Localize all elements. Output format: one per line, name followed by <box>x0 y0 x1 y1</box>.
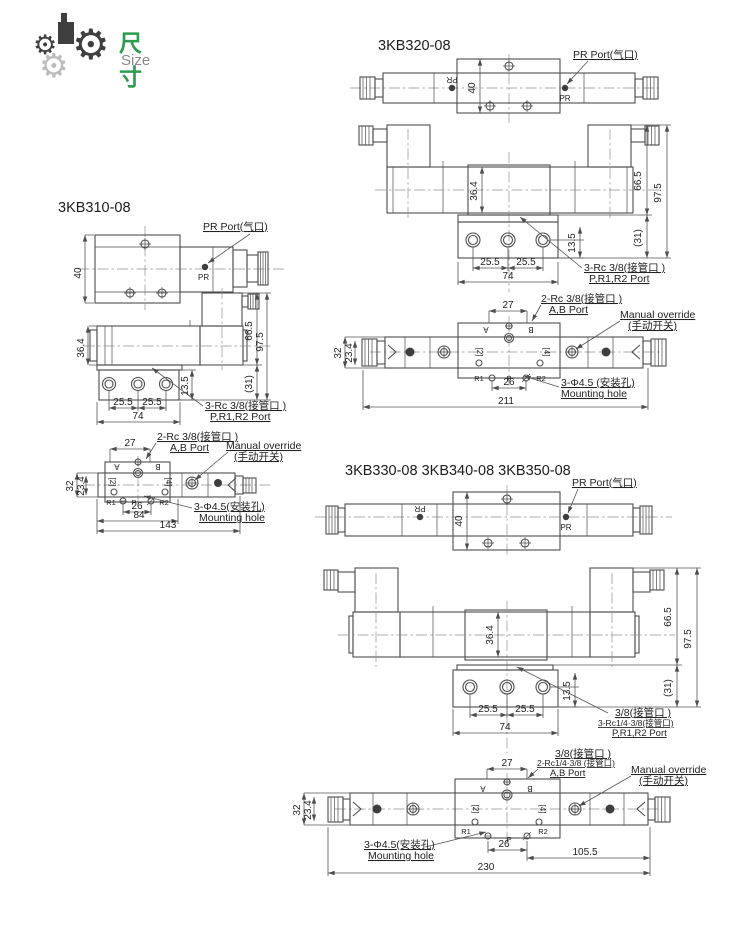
panel-3kb320-drawing: 3KB320-08 PR PR PR Port(气口) <box>330 30 750 430</box>
pr-label: PR <box>560 523 571 532</box>
connector-ribs <box>331 797 338 822</box>
pr-port-dot <box>563 514 569 520</box>
pr-port-dot <box>202 264 208 270</box>
dim-13-5: 13.5 <box>550 673 579 707</box>
svg-text:25.5: 25.5 <box>516 257 536 268</box>
connector-ribs <box>648 126 655 145</box>
port-callout-2: P,R1,R2 Port <box>210 411 271 423</box>
dim-27: 27 <box>489 300 527 323</box>
port-callout-2: P,R1,R2 Port <box>612 728 667 739</box>
screw-ports <box>484 60 533 112</box>
svg-text:97.5: 97.5 <box>683 629 694 649</box>
svg-text:36.4: 36.4 <box>469 181 480 201</box>
svg-text:27: 27 <box>124 438 136 449</box>
svg-text:97.5: 97.5 <box>653 183 664 203</box>
svg-text:230: 230 <box>478 862 495 873</box>
svg-text:66.5: 66.5 <box>633 171 644 191</box>
manual-override-label-cn: (手动开关) <box>639 774 688 787</box>
ab-callout-2: A,B Port <box>170 442 209 454</box>
page: ⚙ ⚙ ⚙ 尺寸 Size 3KB310-08 <box>0 0 750 935</box>
svg-text:66.5: 66.5 <box>663 607 674 627</box>
gear-icon: ⚙ <box>39 49 69 82</box>
port-2-label: [2] <box>471 805 480 814</box>
port-4-label: [4] <box>542 348 551 357</box>
connector-ribs <box>246 478 252 493</box>
connector-ribs <box>327 570 334 590</box>
dim-74: 74 <box>453 709 558 736</box>
size-title-en: Size <box>121 52 150 69</box>
pr-label: PR <box>446 75 457 84</box>
svg-text:26: 26 <box>503 377 515 388</box>
port-a-label: A <box>114 462 120 471</box>
pr-label: PR <box>414 504 425 513</box>
port-callout-2: P,R1,R2 Port <box>589 273 650 285</box>
pr-port-callout: PR Port(气口) <box>203 220 268 233</box>
svg-text:74: 74 <box>499 722 511 733</box>
svg-text:32: 32 <box>292 804 303 816</box>
svg-text:23.4: 23.4 <box>344 343 355 363</box>
dim-36-4: 36.4 <box>485 612 498 657</box>
manual-override-button <box>438 346 450 358</box>
svg-text:32: 32 <box>65 480 76 492</box>
connector-ribs <box>261 252 266 285</box>
svg-text:84: 84 <box>133 510 145 521</box>
pr-label: PR <box>198 273 209 282</box>
connector-ribs <box>658 797 665 822</box>
svg-text:13.5: 13.5 <box>567 233 578 253</box>
connector-ribs <box>643 506 649 534</box>
pr-port-dot <box>562 85 568 91</box>
330-top-view: PR PR PR Port(气口) 40 <box>315 476 672 556</box>
tractor-chimney-icon <box>61 13 67 24</box>
pipe-ports <box>463 680 550 694</box>
dim-40: 40 <box>467 59 480 113</box>
port-2-label: [2] <box>475 348 484 357</box>
port-a-label: A <box>483 325 489 334</box>
connector-ribs <box>365 339 372 366</box>
connector-ribs <box>251 294 256 309</box>
svg-text:40: 40 <box>467 82 478 94</box>
svg-text:27: 27 <box>501 758 513 769</box>
svg-text:36.4: 36.4 <box>485 625 496 645</box>
svg-text:25.5: 25.5 <box>113 397 133 408</box>
svg-text:32: 32 <box>333 347 344 359</box>
manual-override-button <box>566 346 578 358</box>
dim-25-5: 25.5 25.5 <box>473 247 543 271</box>
port-b-label: B <box>527 784 532 793</box>
section-title-320: 3KB320-08 <box>378 38 451 54</box>
ab-callout-2: A,B Port <box>550 768 586 779</box>
svg-text:25.5: 25.5 <box>515 704 535 715</box>
svg-text:66.5: 66.5 <box>244 321 255 341</box>
manual-override-button <box>186 477 198 489</box>
svg-text:74: 74 <box>132 411 144 422</box>
svg-text:26: 26 <box>498 839 510 850</box>
connector-ribs <box>655 339 662 366</box>
svg-text:143: 143 <box>160 520 177 531</box>
320-front-view: 36.4 13.5 66.5 (31) 97.5 25.5 <box>359 125 671 292</box>
connector-ribs <box>329 506 335 534</box>
section-title-330: 3KB330-08 3KB340-08 3KB350-08 <box>345 463 571 479</box>
manual-override-label-cn: (手动开关) <box>628 319 677 332</box>
dim-74: 74 <box>97 402 180 425</box>
pipe-ports <box>466 233 550 247</box>
port-b-label: B <box>155 462 160 471</box>
ab-callout-2: A,B Port <box>549 304 588 316</box>
panel-3kb330-drawing: 3KB330-08 3KB340-08 3KB350-08 PR PR PR P… <box>290 455 750 935</box>
dim-40: 40 <box>454 492 467 550</box>
port-r2-label: R2 <box>538 827 548 836</box>
port-b-label: B <box>528 325 533 334</box>
svg-text:97.5: 97.5 <box>255 332 266 352</box>
svg-text:25.5: 25.5 <box>142 397 162 408</box>
svg-text:74: 74 <box>502 271 514 282</box>
pipe-ports <box>103 378 173 391</box>
dim-40: 40 <box>73 235 94 303</box>
svg-text:25.5: 25.5 <box>480 257 500 268</box>
mounting-hole-label: Mounting hole <box>199 512 265 524</box>
svg-text:13.5: 13.5 <box>180 376 191 396</box>
svg-text:27: 27 <box>502 300 514 311</box>
manual-override-button <box>407 803 419 815</box>
port-r1-label: R1 <box>474 374 484 383</box>
dim-13-5: 13.5 <box>179 370 196 400</box>
330-bottom-view: 27 3/8(接管口 ) 2-Rc1/4·3/8 (接管口) A,B Port … <box>292 747 706 876</box>
svg-text:23.4: 23.4 <box>76 476 87 496</box>
svg-text:(31): (31) <box>633 229 644 247</box>
dim-25-5: 25.5 25.5 <box>470 694 543 718</box>
connector-ribs <box>653 570 660 590</box>
mounting-hole-label: Mounting hole <box>561 388 627 400</box>
manual-override-label-cn: (手动开关) <box>234 450 283 463</box>
port-a-label: A <box>480 784 486 793</box>
320-bottom-view: 27 2-Rc 3/8(接管口 ) A,B Port Manual overri… <box>333 292 695 410</box>
svg-text:105.5: 105.5 <box>572 847 597 858</box>
port-2-label: [2] <box>108 478 117 487</box>
330-front-view: 36.4 13.5 66.5 (31) 97.5 25.5 <box>324 568 701 753</box>
svg-text:40: 40 <box>73 267 84 279</box>
port-r2-label: R2 <box>159 498 169 507</box>
pr-port-callout: PR Port(气口) <box>573 48 638 61</box>
svg-text:25.5: 25.5 <box>478 704 498 715</box>
port-r1-label: R1 <box>461 827 471 836</box>
connector-ribs <box>362 126 369 145</box>
port-callout-1: 3-Rc1/4·3/8(接管口) <box>598 718 674 728</box>
310-front-view: 3-Rc 3/8(接管口 ) P,R1,R2 Port 36.4 13.5 66… <box>76 288 286 425</box>
section-title-310: 3KB310-08 <box>58 200 131 216</box>
pr-label: PR <box>559 94 570 103</box>
ab-callout-1: 2-Rc1/4·3/8 (接管口) <box>537 758 615 768</box>
svg-text:(31): (31) <box>663 679 674 697</box>
pr-port-callout: PR Port(气口) <box>572 476 637 489</box>
dim-36-4: 36.4 <box>76 326 97 365</box>
dim-25-5: 25.5 25.5 <box>109 391 166 411</box>
mounting-hole-label: Mounting hole <box>368 850 434 862</box>
svg-text:36.4: 36.4 <box>76 338 87 358</box>
port-r1-label: R1 <box>106 498 116 507</box>
svg-text:40: 40 <box>454 515 465 527</box>
320-top-view: PR PR PR Port(气口) 40 <box>350 48 662 123</box>
310-bottom-view: 27 2-Rc 3/8(接管口 ) A,B Port Manual overri… <box>65 430 301 534</box>
screw-ports <box>482 493 531 549</box>
solenoid-pin <box>214 479 222 487</box>
dim-27: 27 <box>110 438 150 462</box>
svg-text:23.4: 23.4 <box>303 800 314 820</box>
port-4-label: [4] <box>538 805 547 814</box>
svg-text:(31): (31) <box>244 375 255 393</box>
svg-text:211: 211 <box>498 396 514 407</box>
manual-override-button <box>569 803 581 815</box>
dim-13-5: 13.5 <box>550 227 584 258</box>
port-4-label: [4] <box>164 478 173 487</box>
gear-icon: ⚙ <box>72 24 110 66</box>
